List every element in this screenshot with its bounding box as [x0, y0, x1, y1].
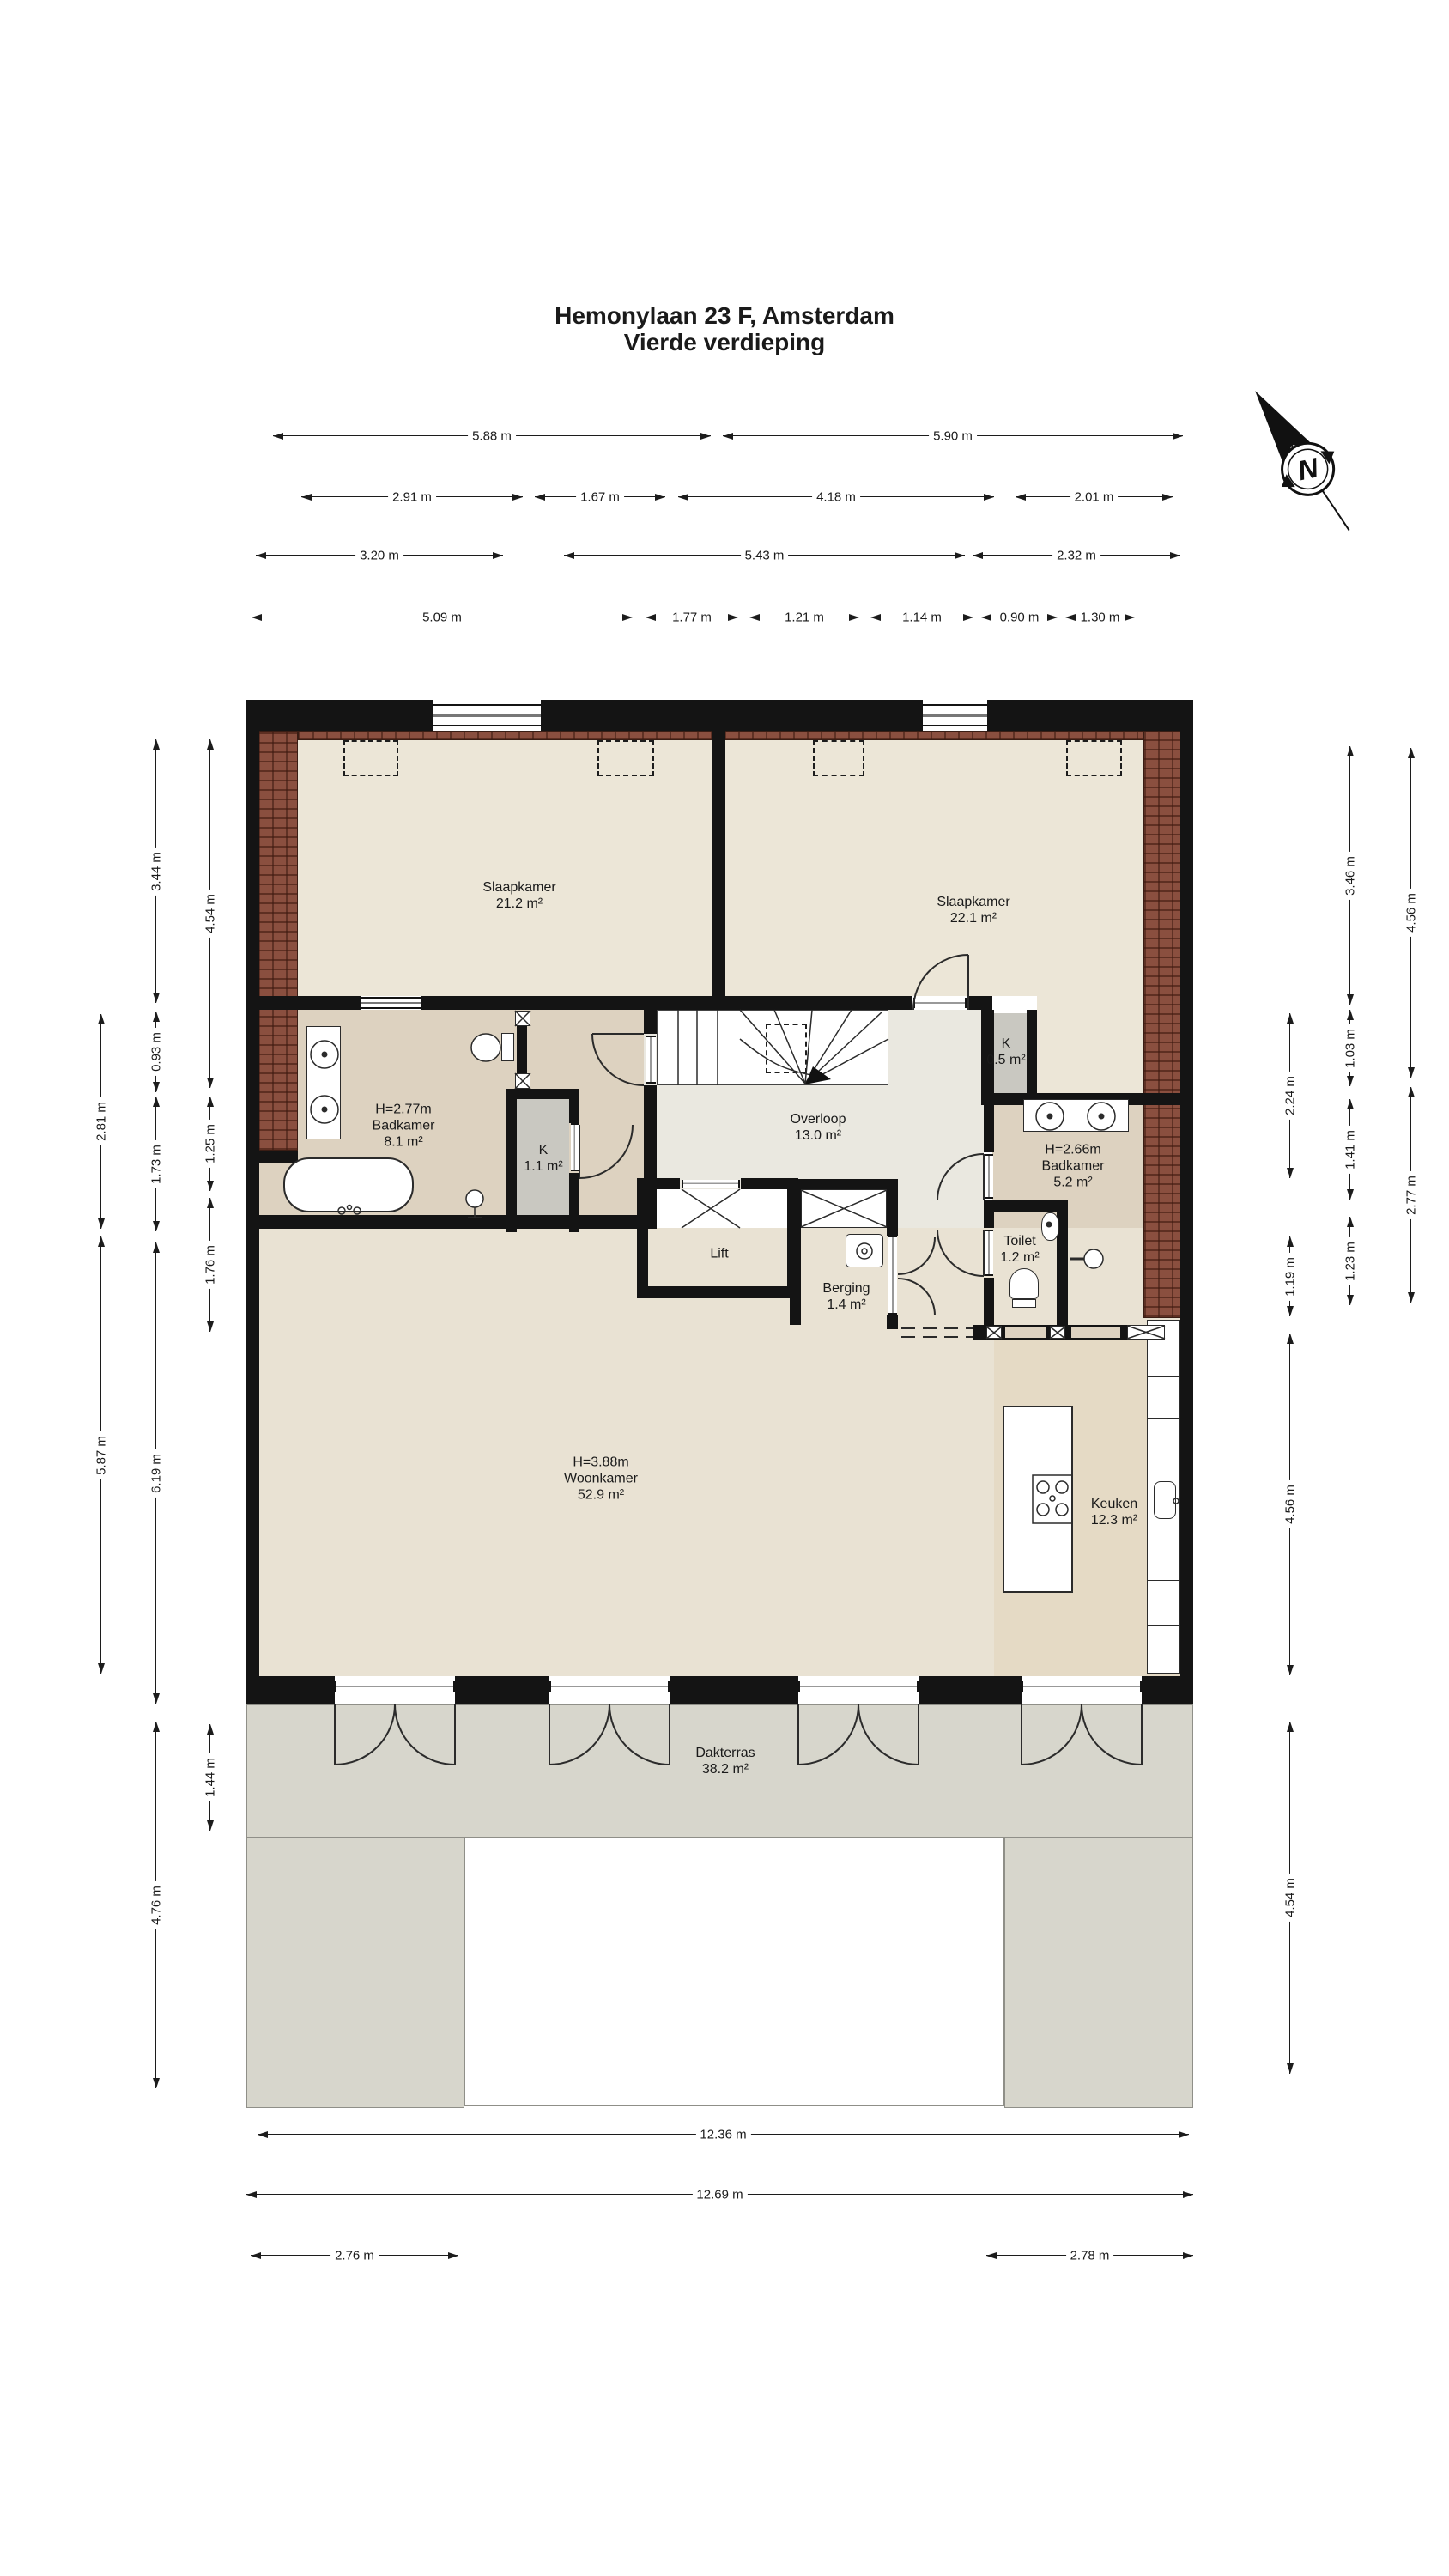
dimension-label: 12.36 m — [695, 2128, 750, 2142]
stairs-down-arrow — [805, 1066, 831, 1084]
room-label-overloop: Overloop13.0 m² — [791, 1111, 846, 1144]
dimension-label: 2.78 m — [1066, 2249, 1114, 2263]
dimension-h: 5.09 m — [252, 617, 633, 617]
dimension-label: 0.93 m — [149, 1028, 164, 1076]
dimension-h: 2.32 m — [973, 555, 1180, 556]
dimension-v: 1.25 m — [209, 1097, 210, 1191]
dimension-v: 3.46 m — [1349, 746, 1350, 1005]
dimension-label: 4.18 m — [812, 490, 860, 505]
dimension-v: 4.76 m — [155, 1722, 156, 2088]
dimension-v: 0.93 m — [155, 1012, 156, 1092]
dimension-h: 3.20 m — [256, 555, 503, 556]
dimension-label: 4.56 m — [1283, 1480, 1298, 1528]
dimension-label: 1.25 m — [203, 1120, 218, 1168]
room-label-woonkamer: H=3.88mWoonkamer52.9 m² — [564, 1455, 638, 1504]
dimension-label: 4.54 m — [203, 890, 218, 938]
room-label-berging: Berging1.4 m² — [822, 1280, 870, 1313]
dimension-v: 3.44 m — [155, 739, 156, 1003]
dimension-label: 6.19 m — [149, 1449, 164, 1498]
dimension-h: 2.91 m — [301, 496, 523, 497]
dimension-label: 2.76 m — [330, 2249, 379, 2263]
dimension-h: 12.69 m — [246, 2194, 1193, 2195]
floorplan-canvas: Hemonylaan 23 F, Amsterdam Vierde verdie… — [0, 0, 1449, 2576]
dimension-label: 5.90 m — [929, 429, 977, 444]
room-label-dakterras: Dakterras38.2 m² — [695, 1745, 755, 1777]
dimension-v: 1.73 m — [155, 1097, 156, 1231]
dimension-label: 1.03 m — [1343, 1024, 1358, 1072]
dimension-v: 4.56 m — [1410, 748, 1411, 1078]
dimension-label: 1.44 m — [203, 1753, 218, 1801]
dimension-label: 5.43 m — [741, 549, 789, 563]
dimension-h: 4.18 m — [678, 496, 994, 497]
dimension-v: 4.54 m — [209, 739, 210, 1088]
dimension-label: 1.21 m — [780, 611, 828, 625]
dimension-v: 5.87 m — [100, 1236, 101, 1674]
room-label-slaapkamer-1: Slaapkamer21.2 m² — [482, 879, 555, 912]
dimension-h: 1.14 m — [870, 617, 973, 617]
dimension-h: 5.43 m — [564, 555, 965, 556]
dimension-v: 1.76 m — [209, 1198, 210, 1332]
dimension-label: 1.19 m — [1283, 1253, 1298, 1301]
dimension-label: 2.24 m — [1283, 1072, 1298, 1120]
room-label-keuken: Keuken12.3 m² — [1091, 1496, 1137, 1528]
dimension-v: 6.19 m — [155, 1242, 156, 1704]
room-label-kast-1: K1.1 m² — [524, 1142, 562, 1175]
dimension-label: 1.23 m — [1343, 1237, 1358, 1285]
dimension-label: 3.44 m — [149, 848, 164, 896]
dimension-label: 3.20 m — [355, 549, 403, 563]
dimension-label: 1.41 m — [1343, 1126, 1358, 1174]
dimension-h: 2.01 m — [1016, 496, 1173, 497]
room-label-badkamer-2: H=2.66mBadkamer5.2 m² — [1042, 1142, 1105, 1191]
dimension-label: 1.73 m — [149, 1140, 164, 1188]
dimension-label: 4.56 m — [1404, 889, 1419, 937]
dimension-label: 5.09 m — [418, 611, 466, 625]
dimension-label: 5.87 m — [94, 1431, 109, 1479]
room-label-badkamer-1: H=2.77mBadkamer8.1 m² — [373, 1102, 435, 1151]
dimension-v: 1.23 m — [1349, 1217, 1350, 1305]
dimension-label: 1.76 m — [203, 1241, 218, 1289]
dimension-v: 1.19 m — [1289, 1236, 1290, 1316]
dimension-label: 2.01 m — [1070, 490, 1119, 505]
dimension-h: 5.90 m — [723, 435, 1183, 436]
dimension-v: 2.77 m — [1410, 1087, 1411, 1303]
dimension-label: 2.77 m — [1404, 1171, 1419, 1219]
dimension-v: 4.54 m — [1289, 1722, 1290, 2074]
dimension-v: 4.56 m — [1289, 1334, 1290, 1675]
dimension-v: 2.81 m — [100, 1014, 101, 1229]
dimension-h: 1.67 m — [535, 496, 665, 497]
dimension-label: 0.90 m — [996, 611, 1044, 625]
dimension-h: 2.76 m — [251, 2255, 458, 2256]
dimension-label: 2.32 m — [1052, 549, 1100, 563]
dimension-v: 1.03 m — [1349, 1010, 1350, 1086]
dimension-label: 4.76 m — [149, 1881, 164, 1929]
room-label-lift: Lift — [710, 1246, 728, 1262]
dimension-label: 5.88 m — [468, 429, 516, 444]
room-label-kast-2: K0.5 m² — [986, 1036, 1025, 1068]
room-label-toilet: Toilet1.2 m² — [1000, 1233, 1039, 1266]
dimension-h: 5.88 m — [273, 435, 711, 436]
dimension-v: 1.44 m — [209, 1724, 210, 1831]
dimension-label: 3.46 m — [1343, 852, 1358, 900]
dimension-label: 1.14 m — [898, 611, 946, 625]
dimension-h: 12.36 m — [258, 2134, 1189, 2135]
dimension-label: 12.69 m — [692, 2188, 747, 2202]
dimension-label: 2.91 m — [388, 490, 436, 505]
dimension-h: 2.78 m — [986, 2255, 1193, 2256]
dimension-label: 4.54 m — [1283, 1874, 1298, 1922]
room-label-slaapkamer-2: Slaapkamer22.1 m² — [937, 894, 1009, 927]
dimension-h: 1.77 m — [646, 617, 738, 617]
dimension-h: 0.90 m — [981, 617, 1058, 617]
dimension-label: 1.67 m — [576, 490, 624, 505]
dimension-h: 1.21 m — [749, 617, 859, 617]
dimension-label: 2.81 m — [94, 1097, 109, 1145]
dimension-label: 1.30 m — [1076, 611, 1125, 625]
dimension-h: 1.30 m — [1065, 617, 1135, 617]
dimension-v: 2.24 m — [1289, 1013, 1290, 1178]
dimension-label: 1.77 m — [668, 611, 716, 625]
dimension-v: 1.41 m — [1349, 1099, 1350, 1200]
